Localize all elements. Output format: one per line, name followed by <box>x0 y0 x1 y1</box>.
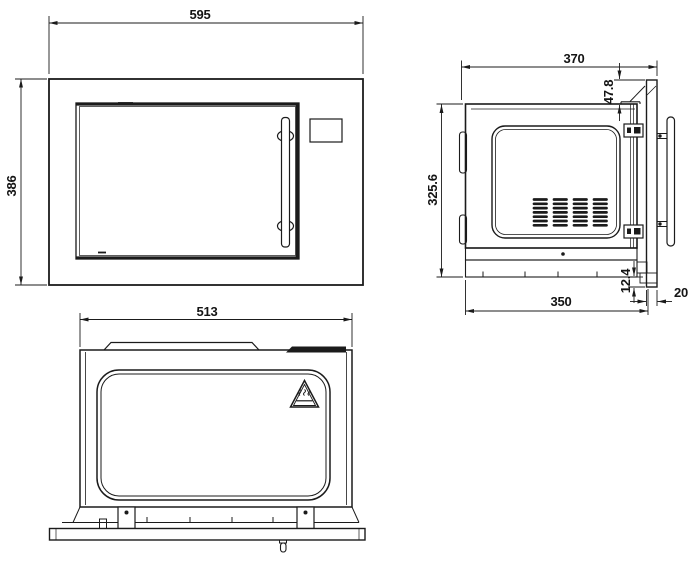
dim-label-trim-thickness: 20 <box>674 285 688 300</box>
vent-grille <box>534 200 607 226</box>
rear-vent-strip <box>286 347 346 353</box>
mounting-tab <box>297 507 314 529</box>
dim-trim-top-offset: 47.8 <box>601 63 645 121</box>
microwave-dimension-drawing: 595 386 <box>0 0 694 563</box>
top-cover-panel <box>97 370 330 500</box>
front-door <box>76 103 299 259</box>
dim-side-depth: 370 <box>462 51 658 100</box>
dim-trim-thickness: 20 <box>630 285 688 306</box>
dim-label-trim-top-offset: 47.8 <box>601 80 616 105</box>
hot-surface-warning-icon <box>291 381 319 408</box>
trim-plate <box>50 529 366 541</box>
dim-label-front-width: 595 <box>189 7 210 22</box>
mounting-bracket <box>624 124 643 137</box>
top-view: 513 <box>50 304 366 552</box>
dim-label-trim-bottom-offset: 12.4 <box>618 268 633 293</box>
dim-trim-bottom-offset: 12.4 <box>618 261 645 303</box>
mounting-bracket <box>624 225 643 238</box>
front-control-panel <box>310 119 342 142</box>
front-outer-frame <box>49 79 363 285</box>
dim-label-top-width: 513 <box>196 304 217 319</box>
side-door-handle <box>657 117 675 246</box>
handle-cross-section <box>280 540 287 552</box>
dim-label-case-depth: 350 <box>550 294 571 309</box>
front-door-handle <box>278 118 294 248</box>
dim-case-height: 325.6 <box>425 104 463 277</box>
dim-front-width: 595 <box>49 7 363 74</box>
dim-label-side-depth: 370 <box>563 51 584 66</box>
front-trim-frame <box>647 80 658 287</box>
rear-raised-panel <box>104 343 259 351</box>
dim-label-case-height: 325.6 <box>425 174 440 206</box>
front-view: 595 386 <box>4 7 363 285</box>
mounting-tab <box>118 507 135 529</box>
front-trim-assembly <box>50 507 366 552</box>
side-view: 370 47.8 325.6 350 <box>425 51 688 315</box>
top-mounting-flange <box>621 86 645 104</box>
dim-front-height: 386 <box>4 79 47 285</box>
dim-top-width: 513 <box>80 304 352 347</box>
dim-label-front-height: 386 <box>4 175 19 196</box>
